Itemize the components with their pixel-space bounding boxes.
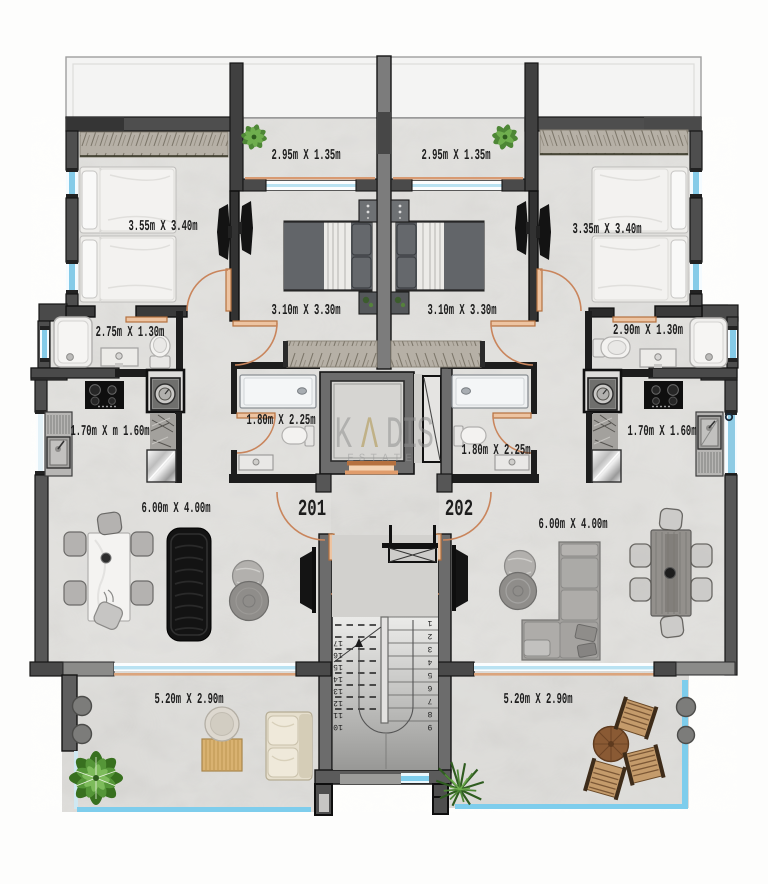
svg-text:2.90m X 1.30m: 2.90m X 1.30m bbox=[613, 322, 683, 339]
svg-text:ESTATE: ESTATE bbox=[347, 453, 417, 465]
svg-text:201: 201 bbox=[298, 496, 326, 522]
svg-text:5.20m X 2.90m: 5.20m X 2.90m bbox=[154, 691, 223, 708]
svg-text:1.70m X 1.60m: 1.70m X 1.60m bbox=[627, 423, 696, 440]
svg-text:5.20m X 2.90m: 5.20m X 2.90m bbox=[503, 691, 572, 708]
svg-text:10: 10 bbox=[333, 722, 343, 731]
svg-text:2.95m X 1.35m: 2.95m X 1.35m bbox=[271, 147, 340, 164]
svg-text:4: 4 bbox=[427, 657, 432, 666]
svg-text:9: 9 bbox=[427, 722, 432, 731]
svg-text:17: 17 bbox=[333, 638, 343, 647]
svg-text:1: 1 bbox=[427, 618, 432, 627]
svg-text:14: 14 bbox=[333, 674, 343, 683]
svg-text:6: 6 bbox=[427, 683, 432, 692]
svg-text:3.10m X 3.30m: 3.10m X 3.30m bbox=[427, 302, 496, 319]
svg-text:1.80m X 2.25m: 1.80m X 2.25m bbox=[246, 412, 315, 429]
svg-text:8: 8 bbox=[427, 709, 432, 718]
svg-text:S: S bbox=[417, 410, 434, 461]
svg-text:3.10m X 3.30m: 3.10m X 3.30m bbox=[271, 302, 340, 319]
svg-text:2.95m X 1.35m: 2.95m X 1.35m bbox=[421, 147, 490, 164]
svg-text:15: 15 bbox=[333, 662, 343, 671]
svg-text:1.70m X m 1.60m: 1.70m X m 1.60m bbox=[71, 423, 150, 440]
svg-text:2.75m X 1.30m: 2.75m X 1.30m bbox=[96, 324, 165, 341]
svg-text:3.35m X 3.40m: 3.35m X 3.40m bbox=[572, 221, 641, 238]
svg-text:13: 13 bbox=[333, 686, 343, 695]
svg-text:1.80m X 2.25m: 1.80m X 2.25m bbox=[461, 442, 530, 459]
svg-text:11: 11 bbox=[333, 710, 343, 719]
svg-text:12: 12 bbox=[333, 698, 343, 707]
svg-text:3.55m X 3.40m: 3.55m X 3.40m bbox=[128, 218, 197, 235]
svg-text:3: 3 bbox=[427, 644, 432, 653]
svg-text:16: 16 bbox=[333, 650, 343, 659]
svg-text:202: 202 bbox=[445, 496, 473, 522]
svg-text:5: 5 bbox=[427, 670, 432, 679]
svg-text:6.00m X 4.00m: 6.00m X 4.00m bbox=[141, 500, 210, 517]
svg-text:2: 2 bbox=[427, 631, 432, 640]
svg-text:7: 7 bbox=[427, 696, 432, 705]
svg-text:6.00m X 4.00m: 6.00m X 4.00m bbox=[538, 516, 607, 533]
